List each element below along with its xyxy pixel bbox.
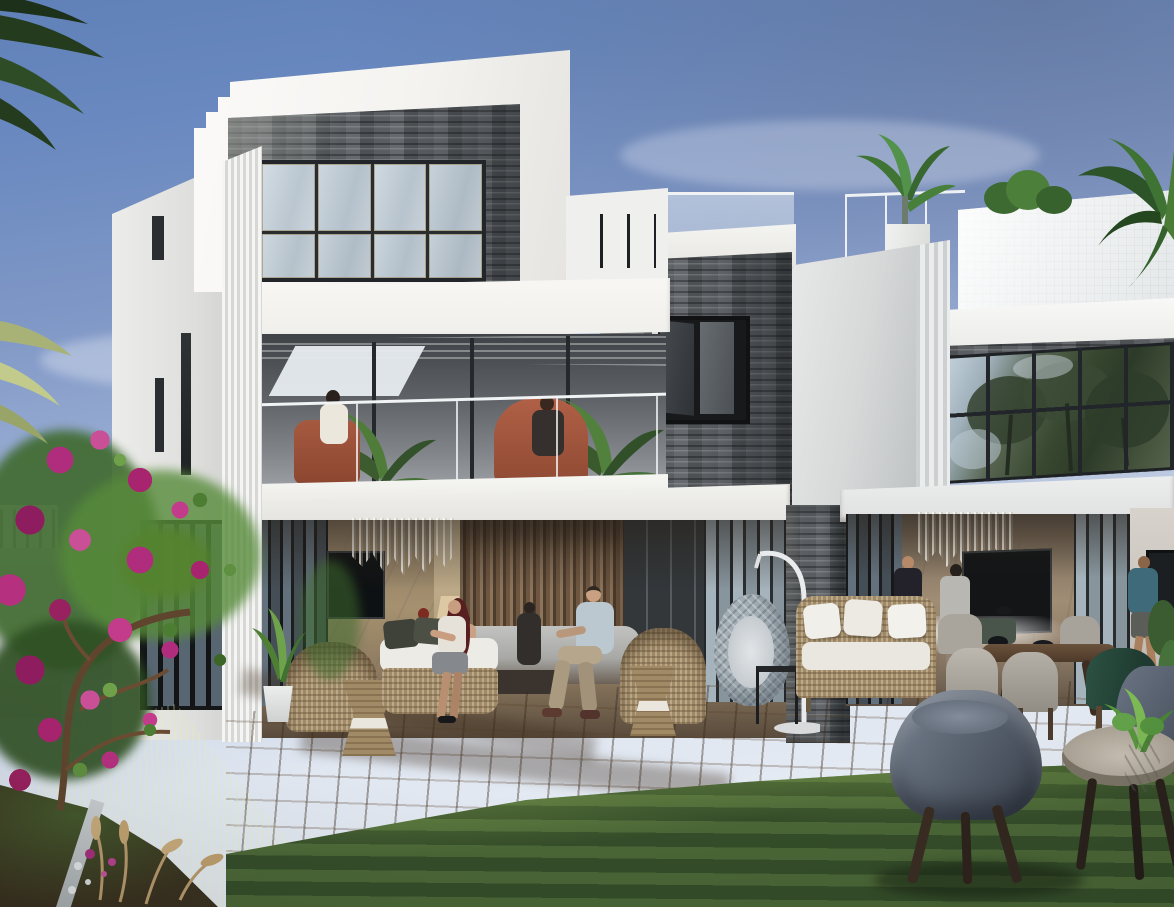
seated-woman-skirt <box>432 652 468 674</box>
pillar-ridges <box>916 240 950 514</box>
chair-shadow <box>874 862 1084 898</box>
tower-window-pane <box>700 322 734 414</box>
sofa-seat-cushion <box>802 642 930 670</box>
right-pillar <box>788 240 950 514</box>
bougainvillea-leaf-dots <box>0 430 280 790</box>
curtain-wall-mullions <box>944 342 1174 484</box>
rattan-sofa <box>796 588 936 716</box>
seated-man-head <box>586 586 601 602</box>
black-side-table <box>756 666 798 724</box>
connector-window <box>576 214 656 268</box>
marble-vase <box>1124 740 1160 792</box>
roof-bushes-icon <box>982 146 1074 220</box>
barrel-chair-seat <box>912 700 1008 734</box>
corner-palm-icon <box>0 0 142 184</box>
pale-palm-icon <box>0 290 84 460</box>
sofa-leg <box>806 698 811 712</box>
window-pane <box>262 164 315 231</box>
seated-woman-shoe <box>438 716 456 723</box>
window-pane <box>374 234 427 278</box>
dining-chair-leg <box>1048 708 1053 740</box>
window-pane <box>318 164 371 231</box>
right-corner-palm-icon <box>1068 130 1174 310</box>
window-pane <box>374 164 427 231</box>
seated-man-shoe <box>542 708 562 717</box>
seated-man-shin <box>548 659 571 711</box>
seated-man-shin <box>577 661 597 712</box>
window-pane <box>429 234 482 278</box>
right-curtain-wall <box>944 342 1174 484</box>
sofa-pillow <box>802 602 841 640</box>
cloud <box>620 120 1040 190</box>
top-floor-window <box>258 160 486 282</box>
connector-block <box>566 188 668 292</box>
window-pane <box>429 164 482 231</box>
window-pane <box>318 234 371 278</box>
architectural-render <box>0 0 1174 907</box>
wall-climber-foliage <box>300 560 360 680</box>
seated-man-shoe <box>580 710 600 719</box>
seated-woman-head <box>448 600 461 614</box>
window-pane <box>262 234 315 278</box>
floor-band <box>256 278 670 340</box>
side-wall-window-slit <box>152 216 164 260</box>
sofa-pillow <box>843 599 883 638</box>
balcony <box>256 334 666 516</box>
sofa-pillow <box>887 603 927 639</box>
patio-roof-shadow <box>846 514 1132 578</box>
balcony-glass-balustrade <box>256 393 666 489</box>
